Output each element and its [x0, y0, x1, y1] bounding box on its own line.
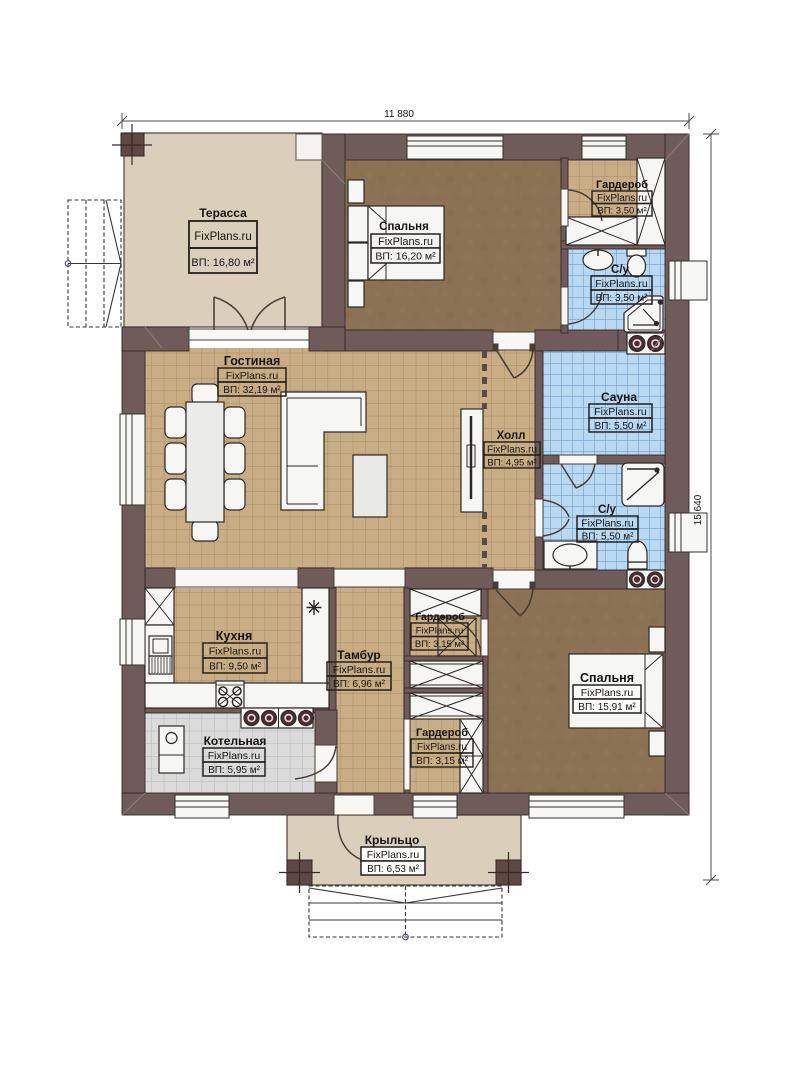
- svg-text:FixPlans.ru: FixPlans.ru: [487, 445, 537, 456]
- svg-text:15 640: 15 640: [693, 494, 704, 525]
- svg-text:Спальня: Спальня: [580, 671, 634, 685]
- svg-text:FixPlans.ru: FixPlans.ru: [208, 750, 261, 762]
- svg-text:Гостиная: Гостиная: [224, 354, 281, 368]
- svg-text:11 880: 11 880: [384, 109, 414, 120]
- svg-text:ВП: 5,95 м²: ВП: 5,95 м²: [208, 765, 261, 776]
- svg-text:ВП: 3,15 м²: ВП: 3,15 м²: [415, 639, 464, 650]
- svg-text:Терасса: Терасса: [199, 206, 247, 220]
- svg-text:FixPlans.ru: FixPlans.ru: [367, 849, 420, 861]
- svg-text:FixPlans.ru: FixPlans.ru: [209, 646, 262, 658]
- svg-text:Холл: Холл: [497, 430, 526, 442]
- svg-text:ВП: 3,50 м²: ВП: 3,50 м²: [597, 206, 646, 217]
- svg-text:Сауна: Сауна: [601, 390, 637, 404]
- svg-text:ВП: 6,53 м²: ВП: 6,53 м²: [367, 864, 420, 875]
- svg-text:С/у: С/у: [611, 264, 630, 276]
- svg-text:Тамбур: Тамбур: [337, 648, 381, 662]
- svg-text:FixPlans.ru: FixPlans.ru: [333, 664, 386, 676]
- svg-text:FixPlans.ru: FixPlans.ru: [594, 406, 647, 418]
- svg-text:ВП: 4,95 м²: ВП: 4,95 м²: [487, 458, 536, 469]
- svg-text:FixPlans.ru: FixPlans.ru: [595, 278, 648, 290]
- svg-text:FixPlans.ru: FixPlans.ru: [581, 687, 634, 699]
- svg-text:ВП: 3,50 м²: ВП: 3,50 м²: [596, 293, 649, 304]
- svg-text:Спальня: Спальня: [379, 221, 429, 233]
- svg-text:ВП: 16,20 м²: ВП: 16,20 м²: [375, 251, 436, 263]
- svg-text:ВП: 3,15 м²: ВП: 3,15 м²: [416, 756, 469, 767]
- svg-text:FixPlans.ru: FixPlans.ru: [378, 236, 433, 248]
- svg-text:ВП: 15,91 м²: ВП: 15,91 м²: [578, 702, 636, 713]
- svg-text:ВП: 5,50 м²: ВП: 5,50 м²: [595, 421, 648, 432]
- svg-text:FixPlans.ru: FixPlans.ru: [194, 231, 252, 243]
- svg-text:ВП: 16,80 м²: ВП: 16,80 м²: [191, 257, 255, 269]
- svg-text:FixPlans.ru: FixPlans.ru: [226, 370, 279, 382]
- svg-text:FixPlans.ru: FixPlans.ru: [416, 626, 464, 637]
- svg-text:Гардероб: Гардероб: [416, 727, 468, 739]
- svg-text:Кухня: Кухня: [216, 629, 253, 643]
- svg-text:ВП: 6,96 м²: ВП: 6,96 м²: [333, 679, 386, 690]
- svg-text:ВП: 9,50 м²: ВП: 9,50 м²: [209, 662, 262, 673]
- svg-text:FixPlans.ru: FixPlans.ru: [417, 742, 467, 753]
- svg-text:С/у: С/у: [598, 504, 617, 516]
- svg-text:ВП: 5,50 м²: ВП: 5,50 м²: [582, 532, 635, 543]
- svg-text:Котельная: Котельная: [204, 734, 267, 748]
- svg-text:Гардероб: Гардероб: [596, 179, 648, 191]
- svg-text:Гардероб: Гардероб: [415, 611, 465, 623]
- svg-text:ВП: 32,19 м²: ВП: 32,19 м²: [223, 385, 281, 396]
- svg-text:Крыльцо: Крыльцо: [365, 833, 420, 847]
- svg-text:FixPlans.ru: FixPlans.ru: [597, 193, 647, 204]
- svg-text:FixPlans.ru: FixPlans.ru: [581, 518, 634, 530]
